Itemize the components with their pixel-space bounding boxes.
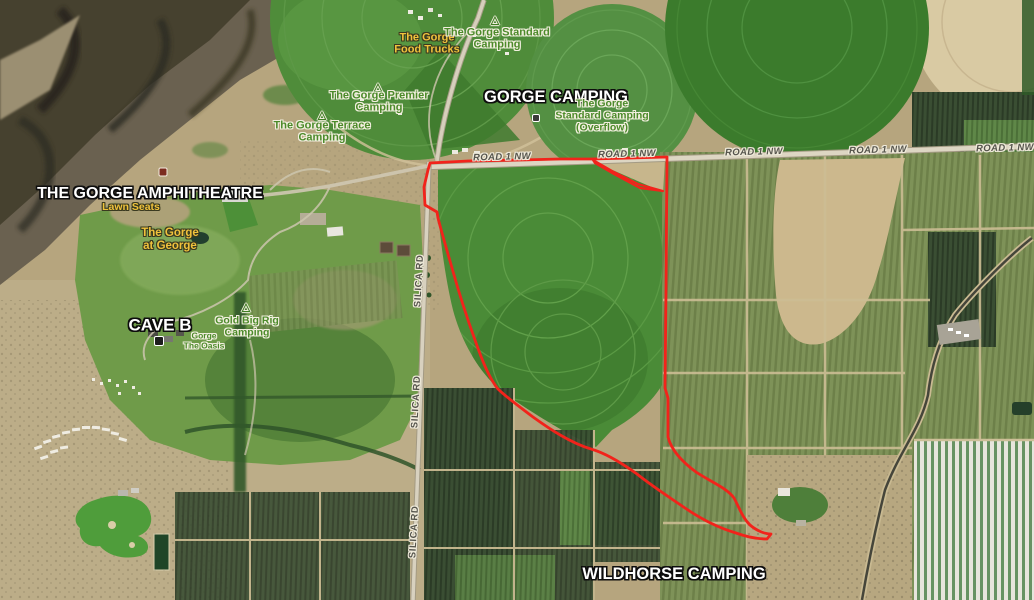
tree-row	[234, 292, 246, 492]
reservoir	[154, 534, 169, 570]
farmland-grid-east	[660, 152, 1034, 600]
satellite-map[interactable]: THE GORGE AMPHITHEATRE Lawn Seats The Go…	[0, 0, 1034, 600]
satellite-basemap	[0, 0, 1034, 600]
